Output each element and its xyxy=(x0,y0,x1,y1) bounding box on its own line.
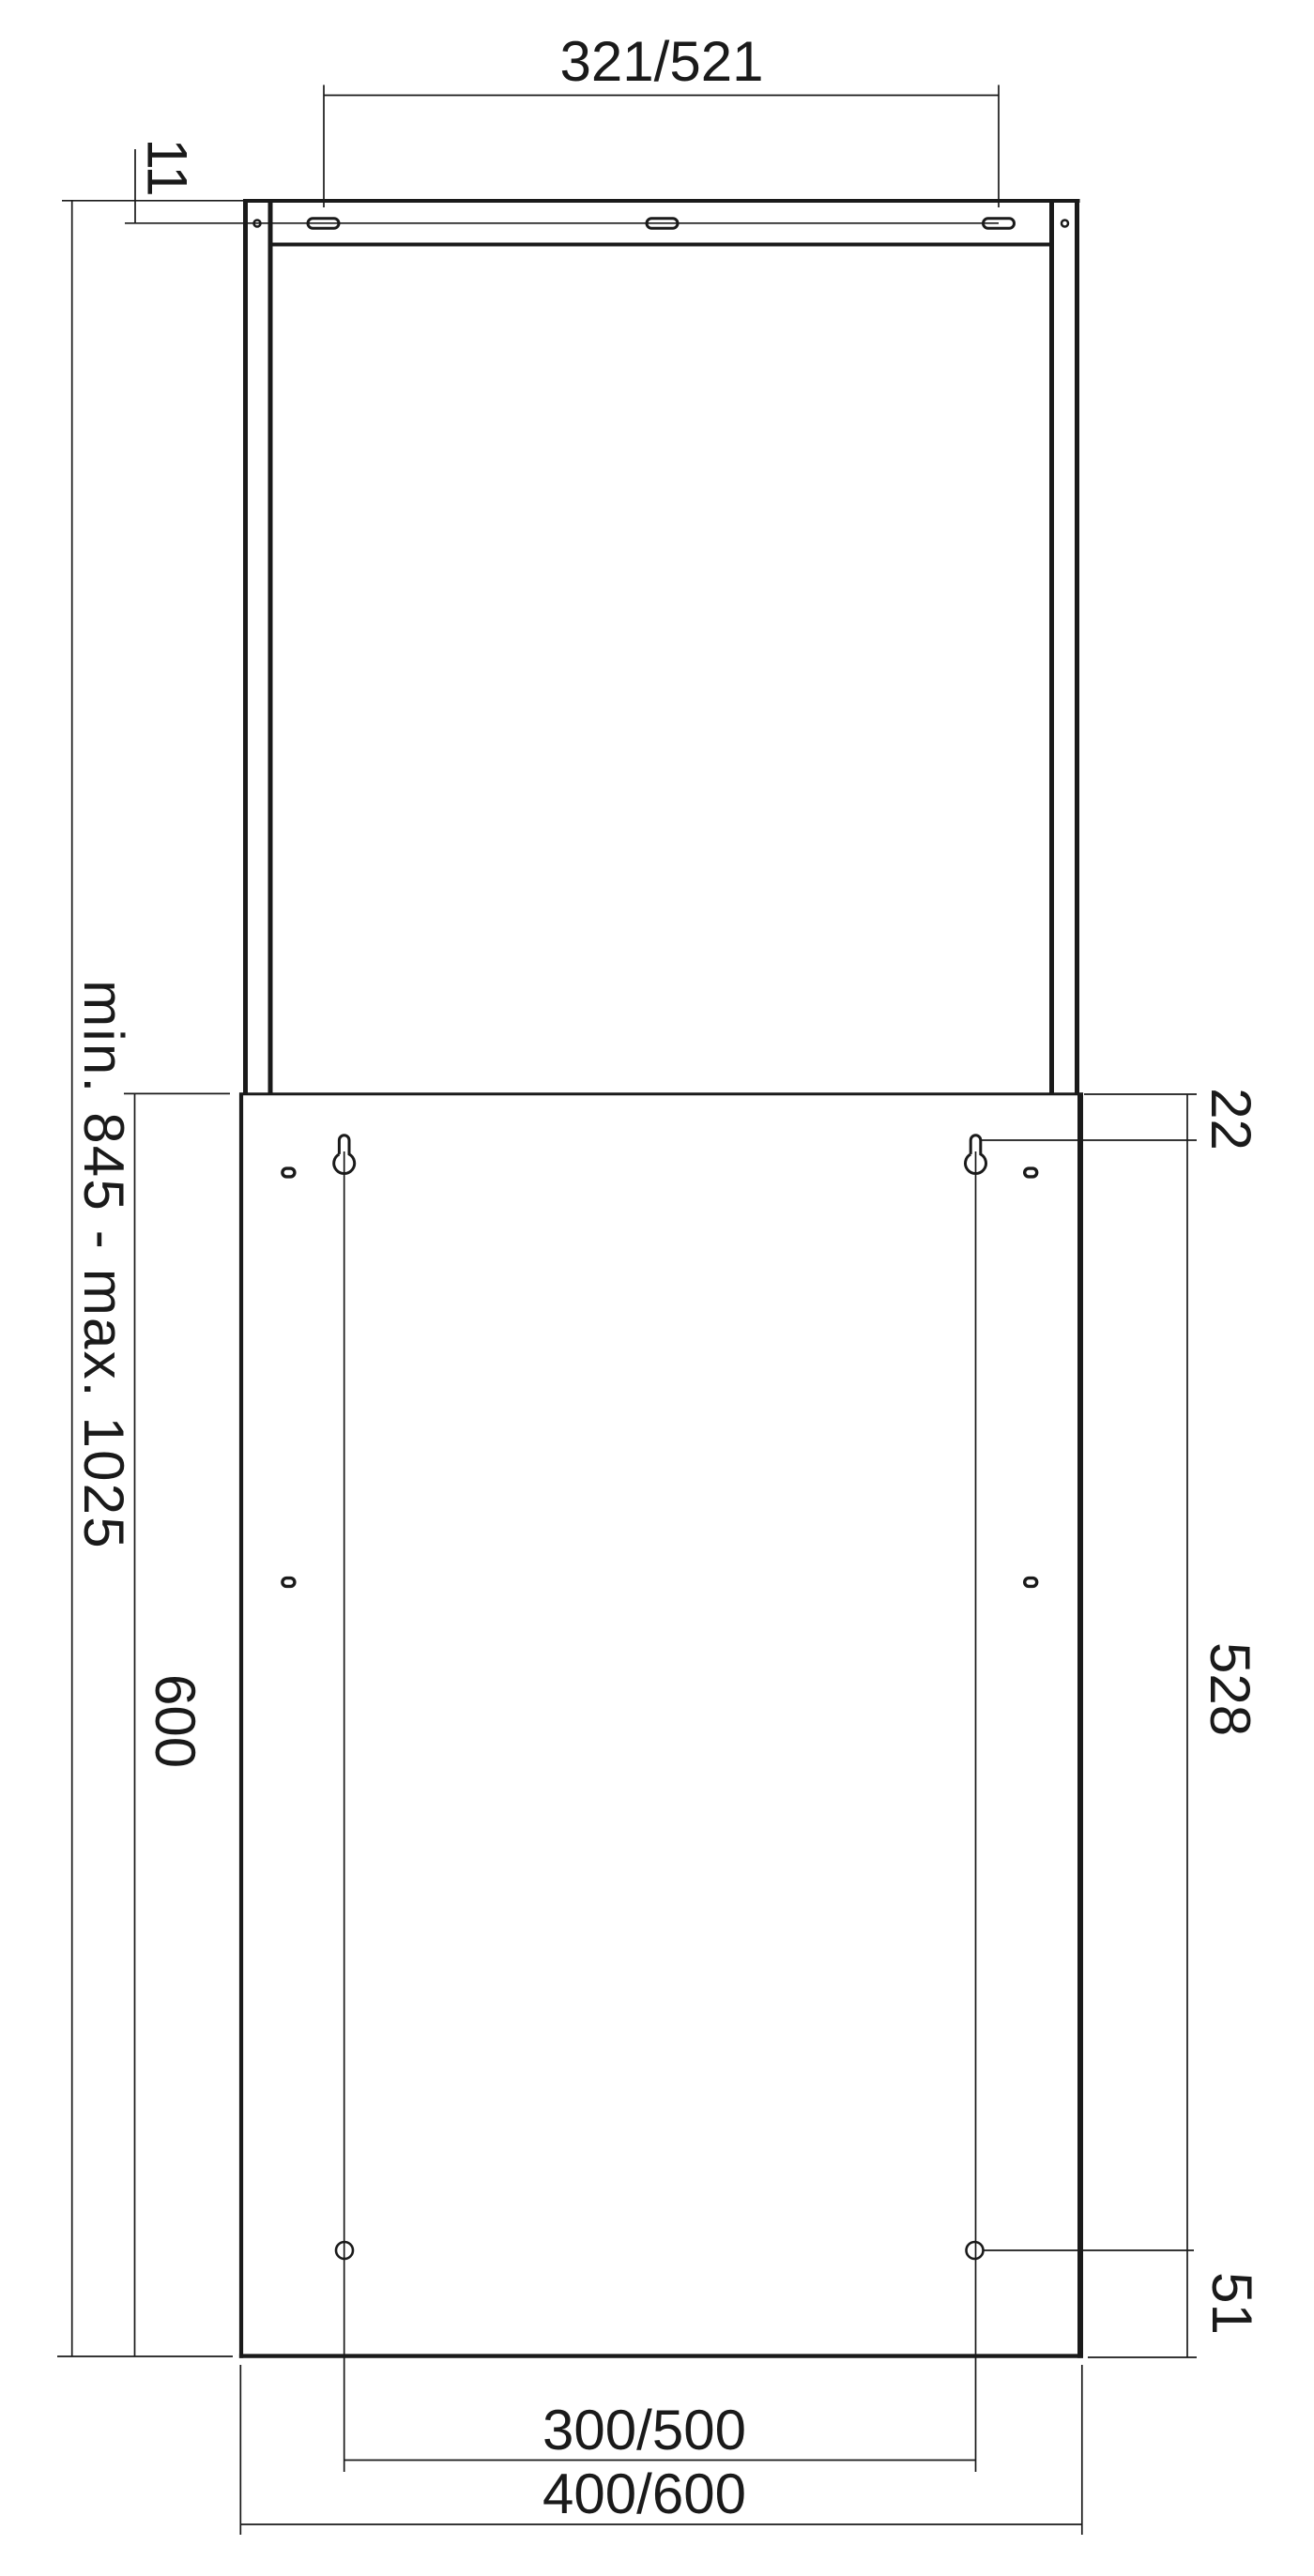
svg-text:11: 11 xyxy=(136,138,199,196)
svg-text:300/500: 300/500 xyxy=(542,2399,746,2462)
svg-text:22: 22 xyxy=(1199,1088,1262,1151)
svg-text:528: 528 xyxy=(1199,1642,1261,1736)
svg-text:600: 600 xyxy=(144,1674,206,1768)
svg-text:321/521: 321/521 xyxy=(560,30,764,93)
svg-text:400/600: 400/600 xyxy=(542,2462,746,2525)
svg-text:51: 51 xyxy=(1200,2272,1263,2335)
svg-text:min. 845 - max. 1025: min. 845 - max. 1025 xyxy=(72,980,135,1550)
